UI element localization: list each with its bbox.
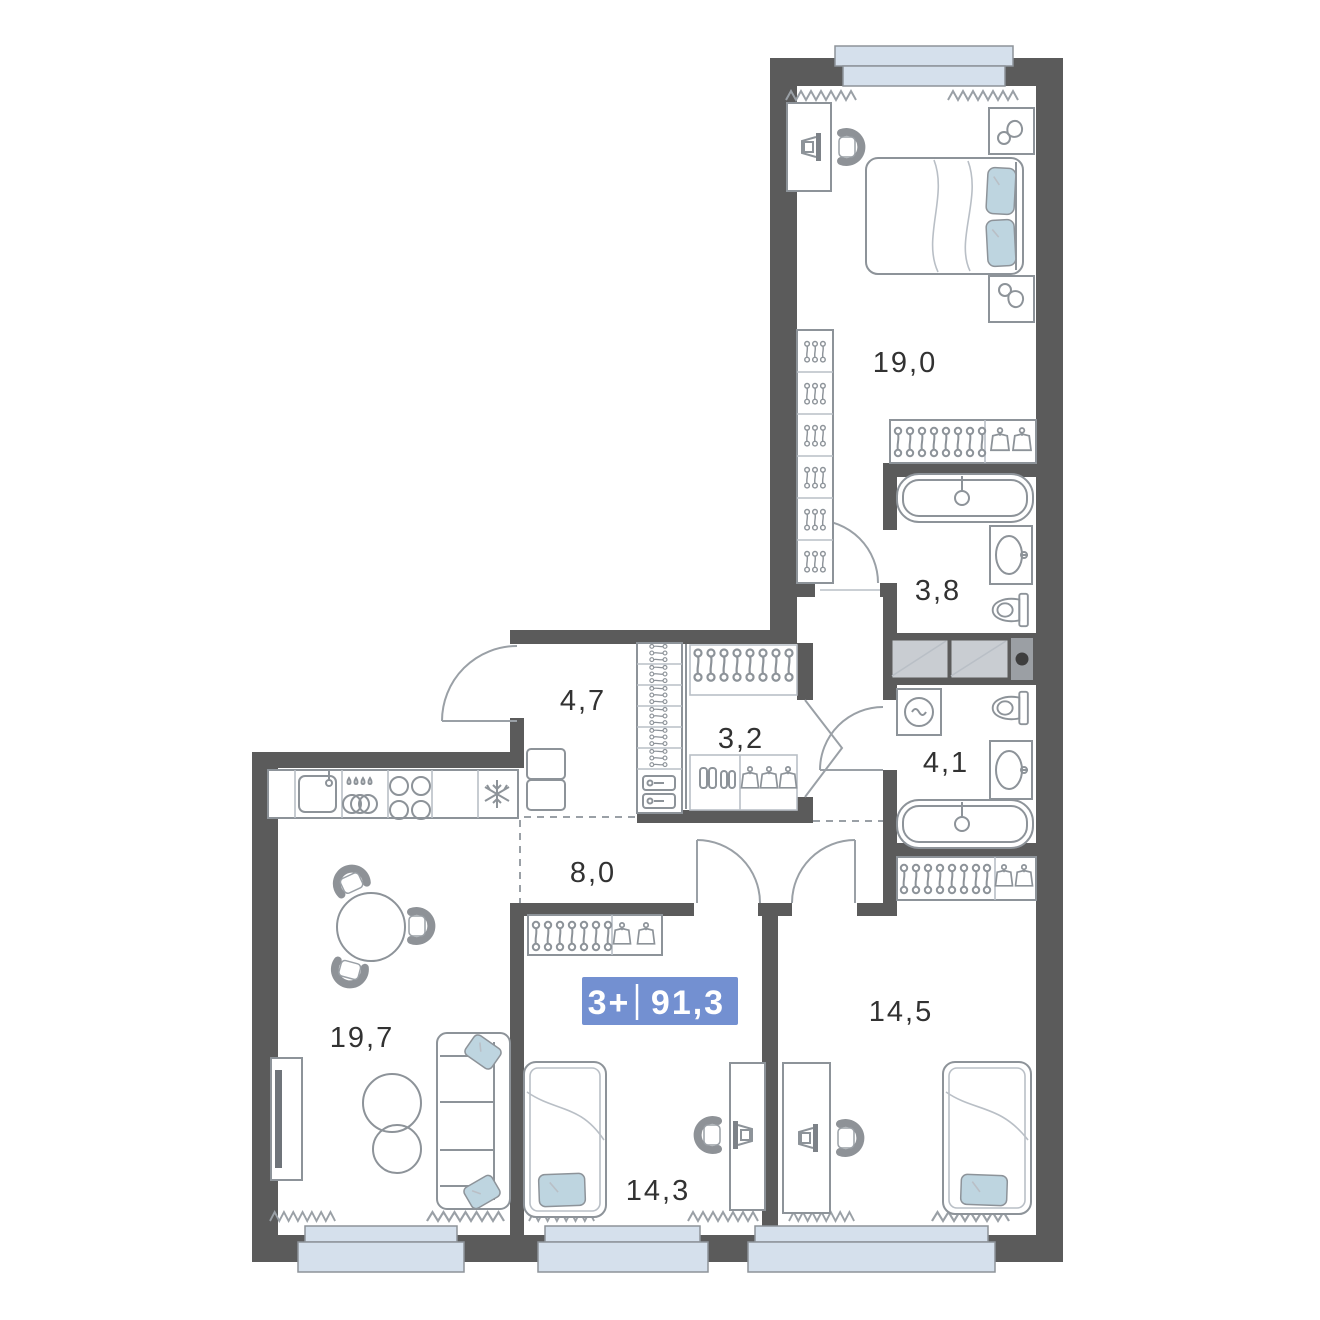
wardrobe-icon [890, 420, 1036, 463]
hallway-furniture [527, 643, 682, 813]
room-area-label-bathroom-1: 3,8 [915, 575, 961, 607]
desk-icon [787, 103, 831, 191]
room-area-label-bedroom-3: 14,3 [626, 1175, 690, 1207]
plan-badge-area: 91,3 [651, 984, 725, 1022]
kitchen-counter-icon [268, 770, 518, 819]
room-area-label-bathroom-2: 4,1 [923, 747, 969, 779]
window-bedroom-3 [538, 1226, 708, 1272]
single-bed-icon [943, 1062, 1031, 1214]
toilet-icon [993, 692, 1028, 724]
single-bed-icon [524, 1062, 606, 1217]
nightstand-icon [989, 108, 1034, 154]
dining-chair-icon [332, 958, 367, 987]
bedroom-3-furniture [524, 915, 765, 1217]
plan-badge: 3+ 91,3 [582, 977, 738, 1025]
door-bedroom-3 [697, 840, 760, 903]
window-living [298, 1226, 464, 1272]
floor-plan-page: 19,0 3,8 4,7 3,2 4,1 8,0 19,7 14,5 14,3 … [0, 0, 1320, 1320]
room-area-label-corridor: 8,0 [570, 857, 616, 889]
coffee-table-icon [363, 1074, 421, 1173]
sink-icon [990, 741, 1032, 799]
nightstand-icon [989, 276, 1034, 322]
room-area-label-bedroom-1: 19,0 [873, 347, 937, 379]
wardrobe-icon [528, 915, 662, 955]
double-bed-icon [866, 158, 1023, 274]
kitchen-living-furniture [268, 770, 518, 1210]
room-area-label-bedroom-2: 14,5 [869, 996, 933, 1028]
bathtub-icon [897, 800, 1033, 848]
washing-machine-icon [897, 689, 941, 735]
sink-icon [990, 526, 1032, 584]
bathtub-icon [897, 474, 1033, 522]
entrance-door-arc [442, 646, 517, 721]
room-area-label-wardrobe-room: 3,2 [718, 723, 764, 755]
desk-chair-icon [839, 132, 861, 162]
window-bedroom-2 [748, 1226, 995, 1272]
desk-icon [730, 1063, 765, 1210]
door-bathroom-2 [820, 707, 883, 770]
sofa-icon [437, 1033, 510, 1210]
desk-chair-icon [838, 1123, 860, 1153]
wardrobe-column-icon [797, 330, 833, 583]
dining-chair-icon [332, 864, 369, 897]
toilet-icon [993, 594, 1028, 626]
wardrobe-icon [897, 857, 1036, 900]
plan-badge-rooms: 3+ [588, 984, 631, 1022]
shoe-cabinet-icon [637, 643, 682, 813]
hanger-rod-icon [690, 645, 797, 695]
utility-shaft-icon [883, 633, 1036, 685]
dining-table-icon [337, 893, 405, 961]
dining-chair-icon [409, 911, 431, 941]
room-area-label-kitchen-living: 19,7 [330, 1022, 394, 1054]
bench-icon [527, 749, 565, 810]
bedroom-2-furniture [783, 857, 1036, 1214]
tv-stand-icon [271, 1058, 302, 1180]
window-bedroom-1 [835, 46, 1013, 86]
desk-chair-icon [698, 1120, 720, 1150]
shelf-icon [690, 755, 797, 810]
floor-plan: 19,0 3,8 4,7 3,2 4,1 8,0 19,7 14,5 14,3 … [0, 0, 1320, 1320]
door-bedroom-2 [792, 840, 855, 903]
desk-icon [783, 1063, 830, 1213]
room-area-label-hallway: 4,7 [560, 685, 606, 717]
